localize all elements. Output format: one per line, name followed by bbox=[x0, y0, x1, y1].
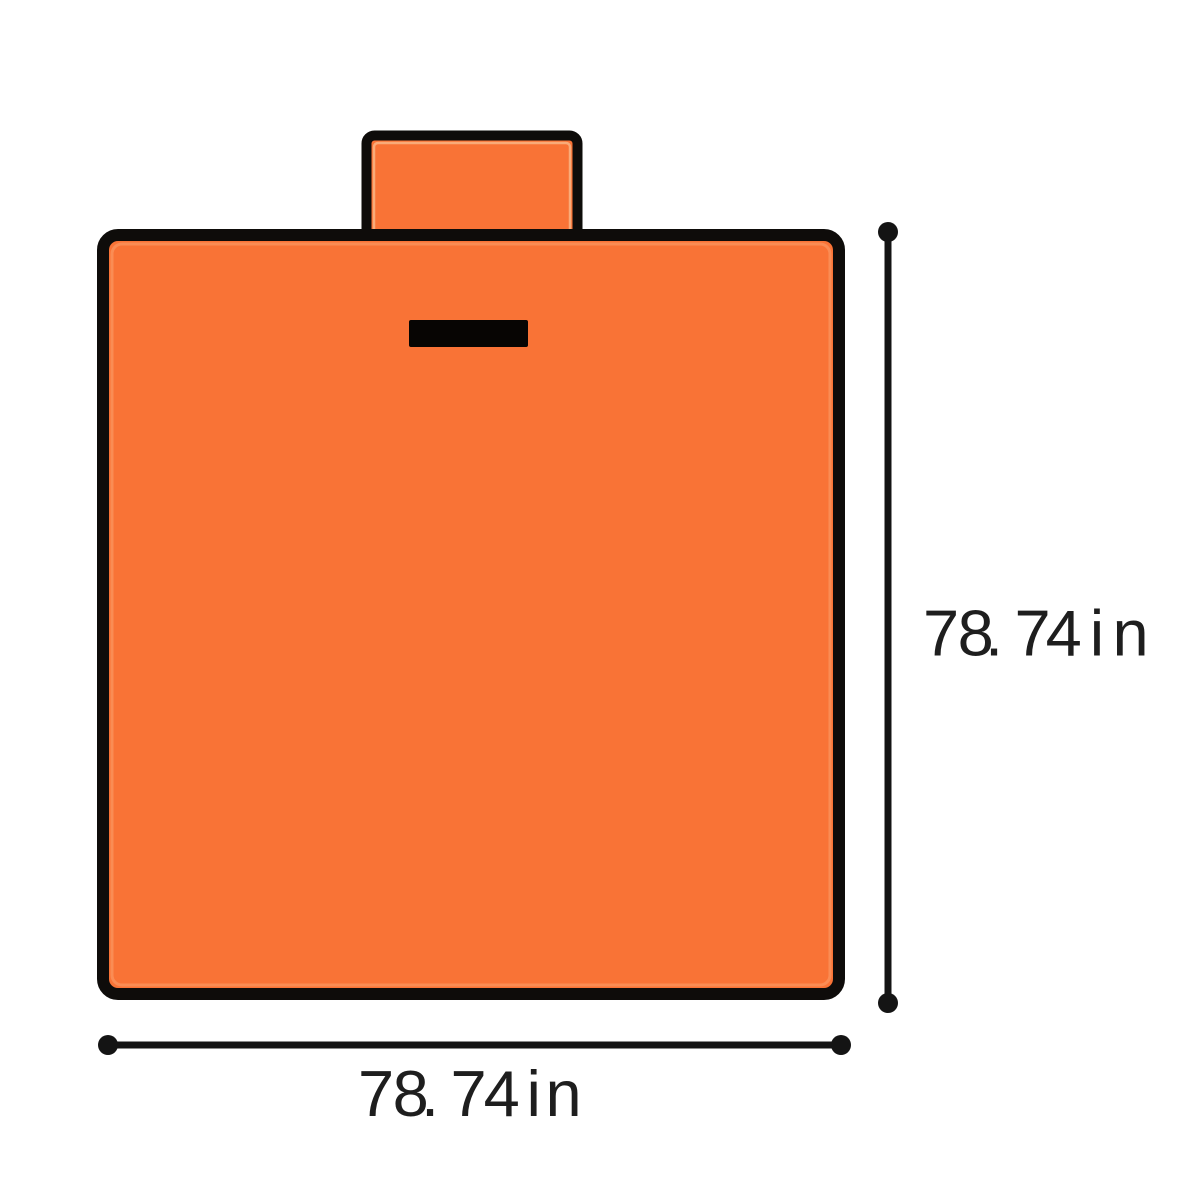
svg-text:78.74in: 78.74in bbox=[923, 597, 1149, 670]
svg-text:78.74in: 78.74in bbox=[358, 1057, 582, 1130]
